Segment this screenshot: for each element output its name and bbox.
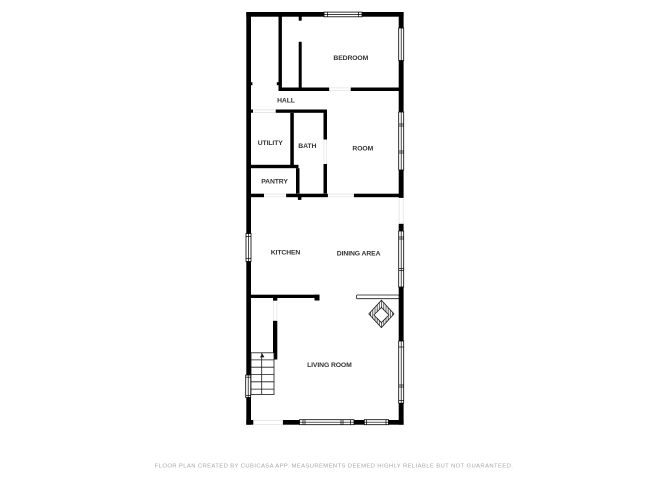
svg-text:ROOM: ROOM (352, 146, 373, 153)
svg-text:HALL: HALL (277, 98, 295, 105)
svg-text:UTILITY: UTILITY (258, 140, 284, 147)
svg-text:PANTRY: PANTRY (261, 179, 288, 186)
svg-text:BEDROOM: BEDROOM (333, 55, 368, 62)
svg-text:KITCHEN: KITCHEN (271, 249, 301, 256)
svg-text:BATH: BATH (298, 143, 316, 150)
svg-text:DINING AREA: DINING AREA (337, 251, 381, 258)
svg-text:FLOOR PLAN CREATED BY CUBICASA: FLOOR PLAN CREATED BY CUBICASA APP. MEAS… (155, 464, 514, 470)
svg-text:LIVING ROOM: LIVING ROOM (307, 362, 352, 369)
